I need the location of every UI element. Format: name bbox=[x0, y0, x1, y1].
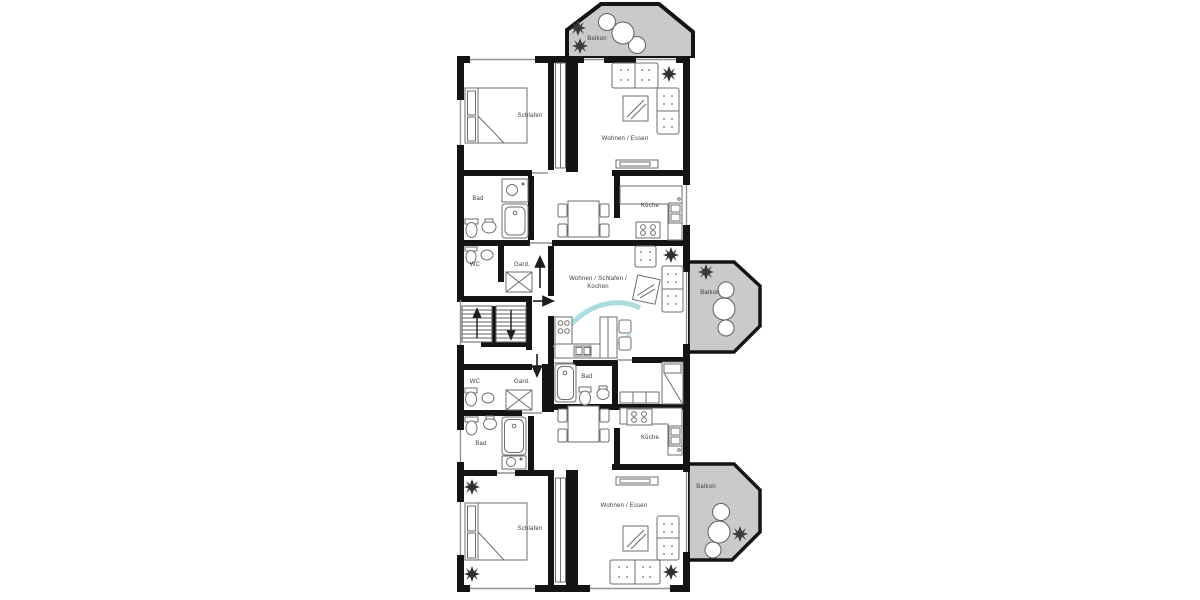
label-wc-top: WC bbox=[464, 262, 486, 269]
plan-drawing bbox=[440, 0, 762, 600]
label-gard-top: Gard. bbox=[510, 262, 534, 269]
label-balkon-middle: Balkon bbox=[696, 290, 724, 297]
label-schlafen-bottom: Schlafen bbox=[508, 526, 552, 533]
plant-icon bbox=[663, 247, 679, 263]
floor-plan-page: Balkon Schlafen Wohnen / Essen Bad Küche… bbox=[0, 0, 1200, 600]
label-wohnen-essen-bottom: Wohnen / Essen bbox=[596, 503, 652, 510]
kitchen-studio bbox=[555, 317, 631, 358]
plant-icon bbox=[464, 566, 480, 582]
glass-table-top bbox=[623, 96, 648, 121]
label-kueche-bottom: Küche bbox=[636, 435, 664, 442]
label-wc-bottom: WC bbox=[464, 379, 486, 386]
wc-bottom-fixtures bbox=[465, 388, 494, 406]
sofa-studio bbox=[662, 266, 683, 312]
label-studio-room-line2: Kochen bbox=[562, 284, 634, 291]
kitchen-bottom bbox=[620, 408, 682, 455]
bathroom-top bbox=[465, 179, 528, 238]
dining-table-top bbox=[558, 201, 609, 237]
kitchen-top bbox=[620, 186, 682, 240]
sideboard-bottom bbox=[616, 477, 658, 485]
label-kueche-top: Küche bbox=[636, 203, 664, 210]
plant-icon bbox=[661, 66, 677, 82]
armchair-studio bbox=[635, 246, 656, 267]
label-schlafen-top: Schlafen bbox=[508, 113, 552, 120]
bed-studio bbox=[662, 362, 683, 404]
sideboard-top bbox=[616, 160, 658, 168]
plant-icon bbox=[663, 564, 679, 580]
dresser-studio bbox=[620, 392, 659, 403]
glass-table-bottom bbox=[623, 526, 648, 551]
label-gard-bottom: Gard. bbox=[510, 379, 534, 386]
label-balkon-top: Balkon bbox=[583, 36, 611, 43]
wardrobe-gard-top bbox=[506, 272, 532, 292]
label-bad-bottom: Bad bbox=[470, 441, 492, 448]
floor-plan: Balkon Schlafen Wohnen / Essen Bad Küche… bbox=[440, 0, 762, 600]
glass-table-studio bbox=[633, 275, 661, 304]
label-wohnen-essen-top: Wohnen / Essen bbox=[598, 136, 652, 143]
label-bad-middle: Bad bbox=[576, 374, 598, 381]
plant-icon bbox=[464, 479, 480, 495]
wardrobe-top bbox=[556, 63, 566, 168]
label-balkon-bottom: Balkon bbox=[692, 484, 720, 491]
wardrobe-gard-bottom bbox=[506, 390, 532, 410]
dining-table-bottom bbox=[558, 406, 609, 442]
wardrobe-bottom bbox=[556, 478, 566, 582]
label-bad-top: Bad bbox=[468, 196, 488, 203]
bathroom-middle bbox=[555, 364, 609, 405]
label-studio-room-line1: Wohnen / Schlafen / bbox=[562, 276, 634, 283]
